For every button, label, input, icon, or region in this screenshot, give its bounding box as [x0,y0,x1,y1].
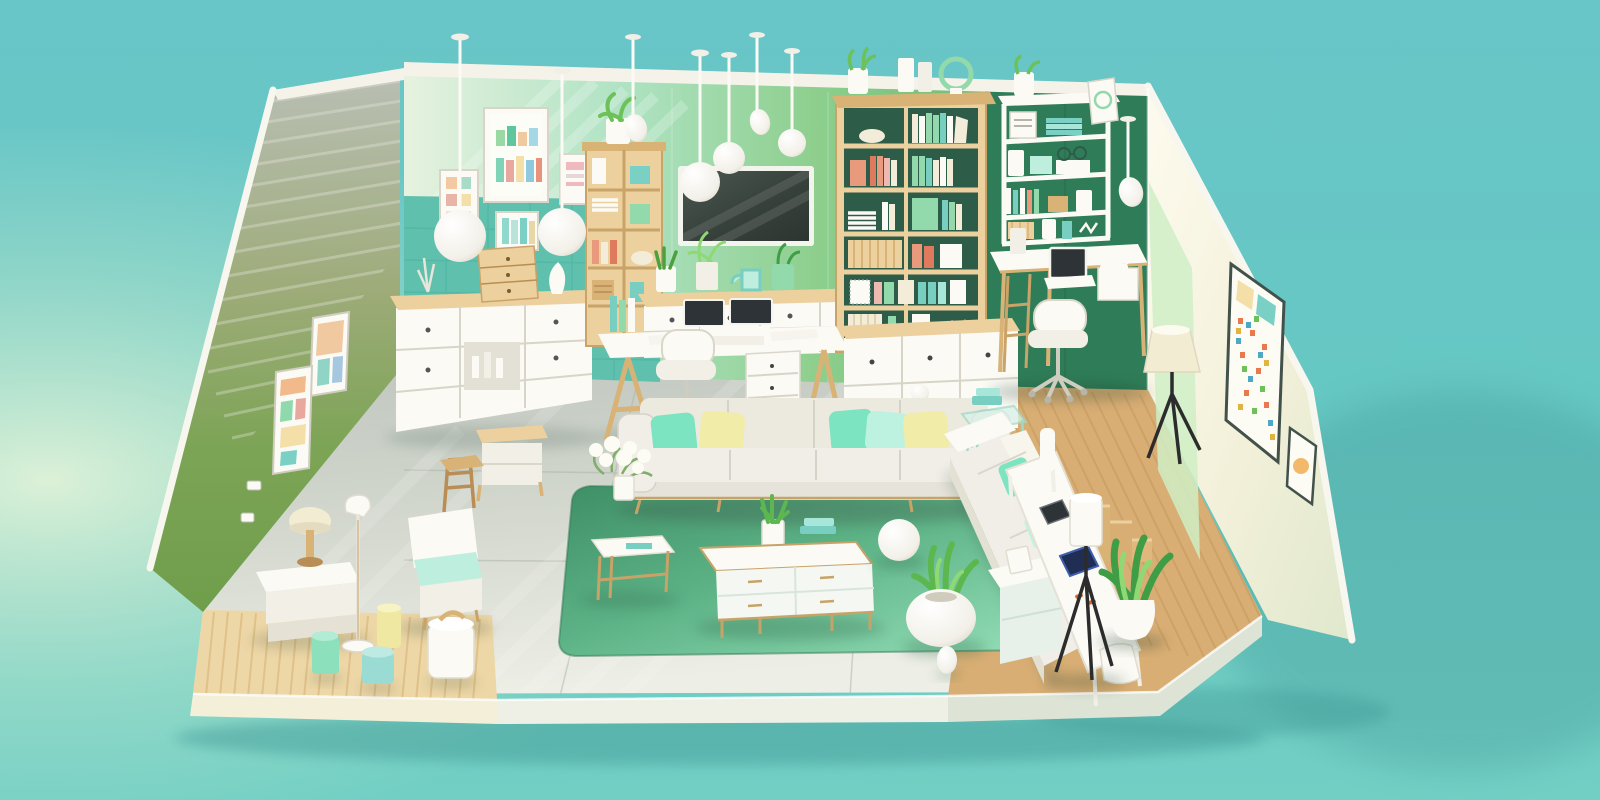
white-stack [592,200,618,210]
book [956,204,962,230]
stool-yellow [377,604,401,649]
book [933,115,939,143]
book [1006,188,1011,214]
bottle [484,352,491,378]
egg-body [937,646,957,674]
book [592,240,599,264]
pillow-pale-mint [864,410,909,454]
frame-swatch [566,162,584,170]
frame-art [280,400,293,422]
jar [592,158,606,184]
book [947,159,953,186]
frame-swatch [566,182,584,186]
plant-pot [848,68,868,94]
book [884,158,890,186]
book [1013,190,1018,214]
leaning-board [1088,78,1118,124]
book [918,282,926,304]
left-bench [250,562,370,650]
frame-swatch [502,218,509,244]
stool-body [428,624,474,678]
book [912,114,918,143]
book [938,282,946,304]
bar-chart-poster [484,108,548,202]
flower-pot [614,476,634,500]
frame-swatch [460,177,471,189]
ring-stand [950,88,962,94]
bowl [631,251,653,265]
knob [507,289,511,293]
outlet [247,481,261,490]
table-book [800,526,836,534]
book [882,202,888,230]
book [919,116,925,143]
chart-bar [516,156,524,182]
jar [1008,150,1024,176]
white-box [950,280,966,304]
desk-book [610,296,617,332]
book [919,156,925,186]
monitor [684,300,724,326]
knob [426,368,431,373]
mint-pot [772,264,794,290]
chart-bar [518,132,527,146]
frame-art [280,424,306,448]
frame-art [1293,458,1309,474]
pouf-ball [878,519,920,561]
book [889,204,895,230]
vase [918,62,932,92]
frame-art [295,398,306,420]
shade-top [1070,493,1102,503]
desk-book [619,300,626,332]
frame-swatch [566,174,584,178]
sofa-seat [644,448,984,482]
shadow [359,683,397,693]
frame-swatch [446,194,457,206]
chart-bar [496,130,505,146]
stool-body [377,608,401,648]
stool-aqua [359,647,397,694]
book-block [850,160,866,186]
book [610,240,617,264]
book [1020,188,1025,214]
book [942,200,948,230]
cabinet-deco-box [1006,546,1033,574]
frame-art [316,320,344,356]
stool-body [312,636,339,674]
bottle [472,356,479,378]
knob [426,328,431,333]
paper-stack [1046,124,1082,129]
frame-art [332,356,343,383]
plant-pot [656,266,676,292]
deco-base [1056,160,1090,174]
book [1062,221,1072,239]
book [1034,189,1039,214]
book [601,242,608,264]
desk-cylinder-speaker [1040,428,1055,472]
frame-art [280,450,297,466]
book [933,160,939,186]
chart-bar [496,158,504,182]
frame-swatch [529,221,535,244]
stool-top [377,604,401,613]
book [928,282,936,304]
shadow [309,673,343,683]
lamp-stem [306,530,314,560]
lamp-base [297,557,323,567]
stool-top [362,647,394,658]
book [874,282,882,304]
desk-cylinder [1010,228,1026,254]
stool-white-handle [426,612,478,688]
monitor [730,299,772,324]
frame-swatch [446,177,457,189]
frame-swatch [460,194,471,206]
table-book [976,388,1000,396]
shadow [1046,674,1126,690]
book [870,156,876,186]
jar [1042,219,1056,239]
mint-box [630,204,650,224]
book [884,282,894,304]
knob [554,356,559,361]
paper-stack [1046,130,1082,135]
table-book [804,518,834,526]
isometric-room-scene: Isometric cutaway illustration of a mint… [0,0,1600,800]
wood-block [1048,196,1068,212]
stool-mint [309,631,343,683]
knob [788,314,793,319]
shadow [580,591,680,609]
table-book [972,396,1002,405]
frame-swatch [511,220,518,244]
knob [506,257,510,261]
book [877,156,883,186]
frame-swatch [520,218,527,244]
book [940,157,946,186]
shade-top [1152,325,1190,335]
book [947,116,953,143]
book [926,113,932,143]
bowl [859,129,885,143]
chart-bar [536,158,542,182]
chart-bar [529,128,538,146]
laptop-screen [1050,248,1086,278]
planter-opening [925,592,957,602]
table-book [626,543,652,549]
chair-seat [1028,330,1088,348]
book [924,246,934,268]
pot [1076,190,1092,212]
plant-pot [696,262,718,290]
illustration-canvas: Isometric cutaway illustration of a mint… [0,0,1600,800]
plant-pot [1014,72,1034,96]
leaning-book [954,116,968,143]
book [891,160,897,186]
frame-art [317,358,330,386]
book [949,202,955,230]
mint-box [1030,156,1052,174]
knob [506,273,510,277]
box [898,280,914,304]
bottle [496,358,503,378]
book [940,113,946,143]
stool-top [428,617,474,631]
book-block [912,198,938,230]
chair-seat [656,360,716,380]
book [926,158,932,186]
patterned-box [850,280,870,304]
teal-box [630,166,650,184]
knob [554,320,559,325]
lamp-shade [1070,498,1102,546]
paper-stack [1046,118,1082,123]
lamp-shade-cone [1144,330,1200,372]
vase [898,58,914,92]
chart-bar [526,160,534,182]
lamp-base [1100,264,1128,274]
desk-book [628,298,635,332]
outlet [241,513,254,522]
white-box [940,244,962,268]
book [1027,190,1032,214]
knob [670,318,675,323]
succulent-pot [762,520,784,548]
stool-top [312,631,339,641]
book [912,244,922,268]
chart-bar [507,126,516,146]
book [912,156,918,186]
chart-bar [506,160,514,182]
